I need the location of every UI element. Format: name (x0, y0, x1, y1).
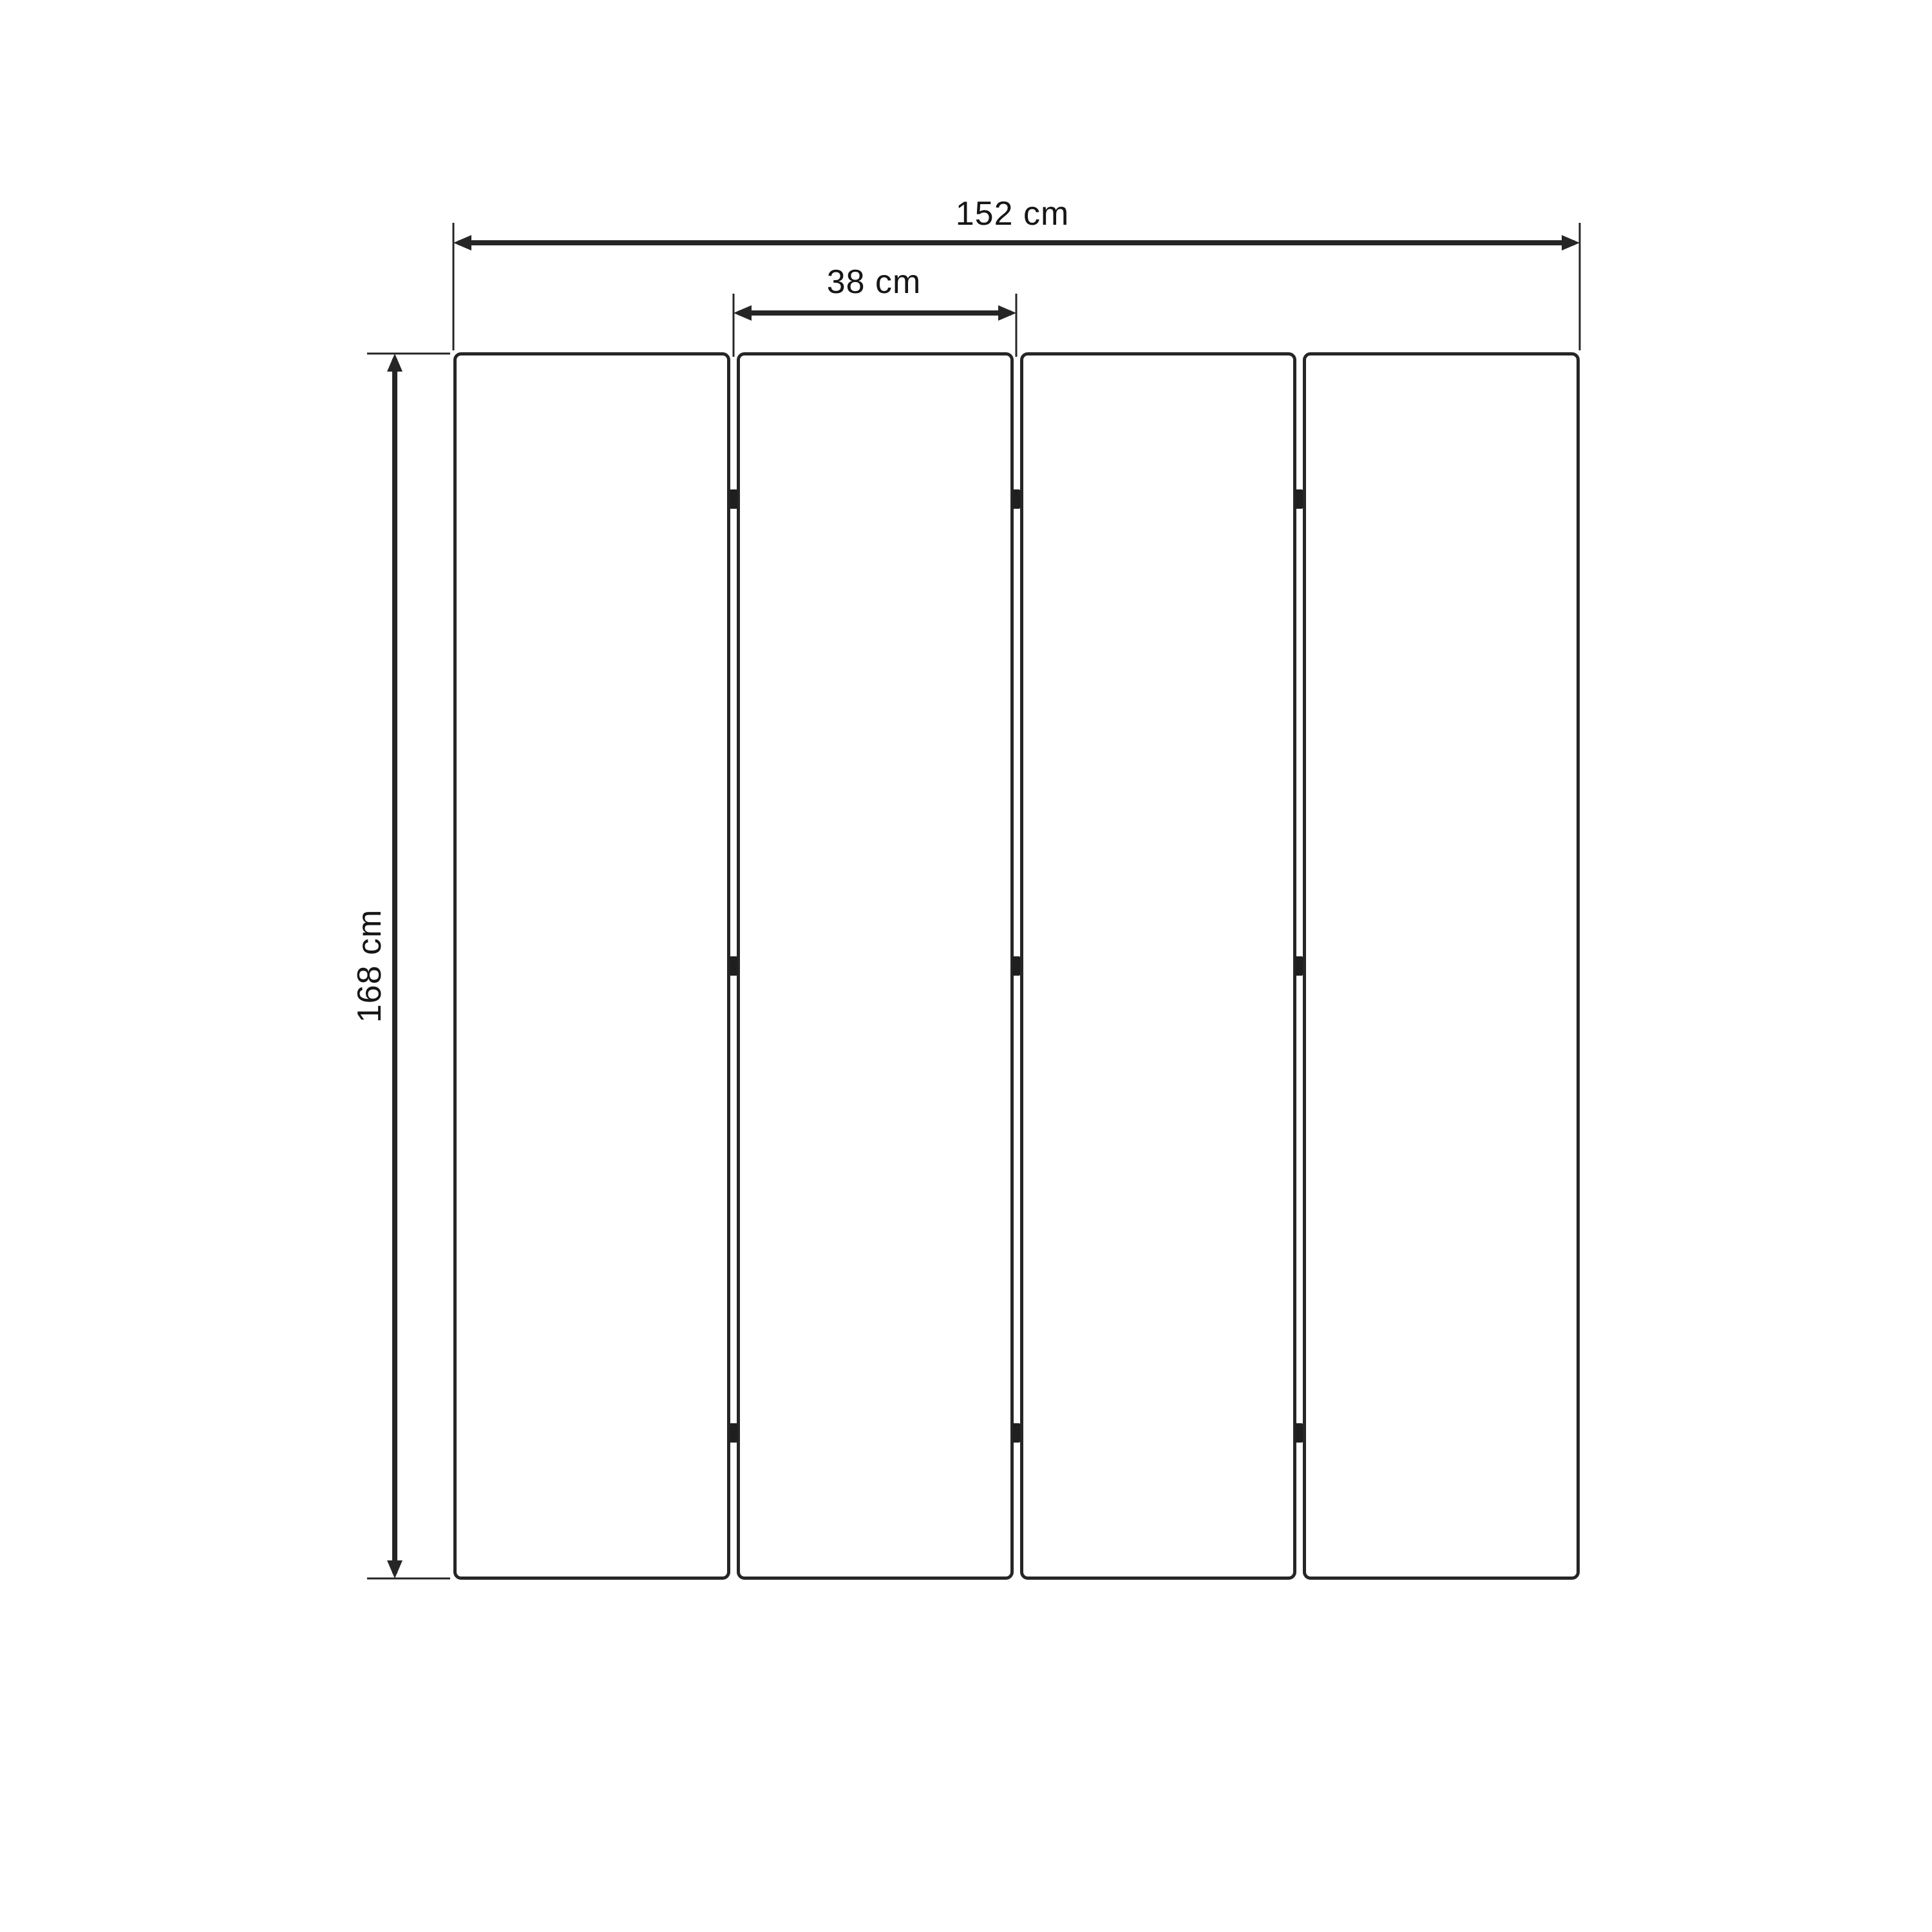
arrowhead-up-icon (387, 354, 402, 372)
panel-width-dimension (734, 294, 1016, 357)
panel-width-label: 38 cm (827, 265, 922, 299)
height-label: 168 cm (353, 909, 386, 1023)
panel-4 (1303, 352, 1580, 1580)
panel-2 (737, 352, 1014, 1580)
dimension-diagram: 152 cm 38 cm 168 cm (0, 0, 1932, 1932)
panel-3 (1020, 352, 1297, 1580)
hinge-mark (730, 489, 737, 509)
hinge-mark (1012, 489, 1020, 509)
hinge-mark (1012, 1423, 1020, 1443)
hinge-mark (730, 956, 737, 976)
hinge-mark (1295, 489, 1303, 509)
arrowhead-down-icon (387, 1560, 402, 1578)
hinge-mark (730, 1423, 737, 1443)
hinge-mark (1295, 956, 1303, 976)
arrowhead-right-icon (1562, 235, 1580, 251)
arrowhead-left-icon (734, 305, 752, 321)
hinge-mark (1012, 956, 1020, 976)
arrowhead-left-icon (453, 235, 471, 251)
panel-1 (453, 352, 730, 1580)
total-width-label: 152 cm (956, 197, 1070, 231)
arrowhead-right-icon (998, 305, 1016, 321)
hinge-mark (1295, 1423, 1303, 1443)
